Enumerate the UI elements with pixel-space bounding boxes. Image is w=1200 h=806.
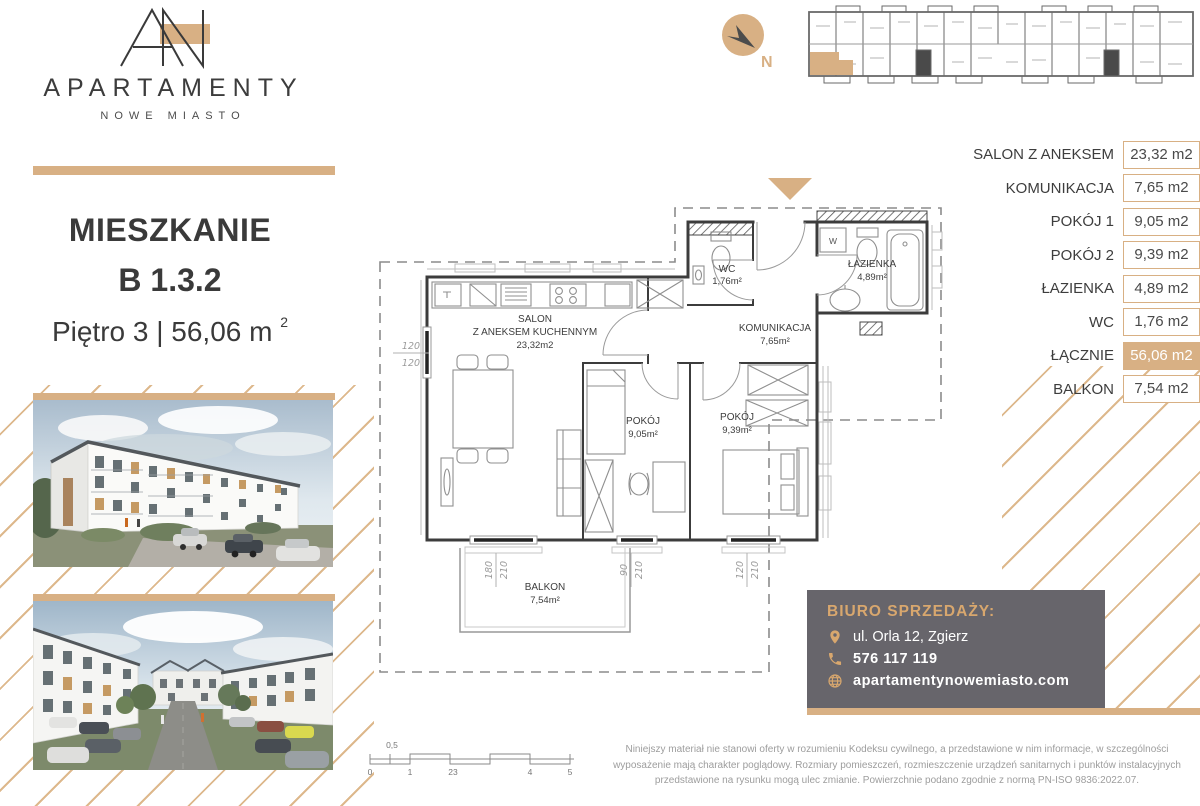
globe-icon xyxy=(827,673,843,689)
address-text: ul. Orla 12, Zgierz xyxy=(853,629,968,645)
scale-4: 4 xyxy=(528,767,533,777)
building-overview-plan xyxy=(806,4,1198,90)
scale-bar: 0,5 0 1 23 4 5 xyxy=(366,736,588,782)
svg-text:210: 210 xyxy=(634,561,645,579)
dimension-labels: 120 120 180 210 90 210 120 210 xyxy=(393,341,761,587)
phone-icon xyxy=(827,651,843,667)
scale-0: 0 xyxy=(368,767,373,777)
bathroom-area: 4,89m² xyxy=(857,272,887,283)
area-superscript: 2 xyxy=(280,314,288,330)
row-value: 9,39 m2 xyxy=(1123,241,1200,269)
table-row: KOMUNIKACJA7,65 m2 xyxy=(945,174,1200,203)
compass-label: N xyxy=(761,54,773,71)
listing-title: MIESZKANIE B 1.3.2 Piętro 3 | 56,06 m 2 xyxy=(0,212,340,348)
scale-1: 1 xyxy=(408,767,413,777)
row-label: ŁAZIENKA xyxy=(945,280,1123,297)
wc-label: WC xyxy=(719,264,736,275)
entrance-arrow-marker xyxy=(768,178,812,200)
building-photo-2 xyxy=(33,601,333,770)
wc-area: 1,76m² xyxy=(712,276,742,287)
scale-23: 23 xyxy=(448,767,458,777)
listing-unit-number: B 1.3.2 xyxy=(0,262,340,299)
website-row: apartamentynowemiasto.com xyxy=(827,673,1105,689)
row-value: 7,65 m2 xyxy=(1123,174,1200,202)
room2-area: 9,39m² xyxy=(722,425,752,436)
table-row: POKÓJ 29,39 m2 xyxy=(945,241,1200,270)
brand-name: APARTAMENTY xyxy=(0,74,340,103)
dim-balcony-door: 180 210 xyxy=(484,553,510,587)
map-pin-icon xyxy=(827,629,843,645)
brand-subtitle: NOWE MIASTO xyxy=(0,110,340,122)
building-photo-1 xyxy=(33,400,333,567)
balcony-label: BALKON xyxy=(525,582,566,593)
contact-bottom-bar xyxy=(807,708,1200,715)
table-row: WC1,76 m2 xyxy=(945,308,1200,337)
address-row: ul. Orla 12, Zgierz xyxy=(827,629,1105,645)
scale-half-label: 0,5 xyxy=(386,740,398,750)
website-text[interactable]: apartamentynowemiasto.com xyxy=(853,673,1069,689)
brochure-page: APARTAMENTY NOWE MIASTO MIESZKANIE B 1.3… xyxy=(0,0,1200,806)
row-value-total: 56,06 m2 xyxy=(1123,342,1200,370)
interior-walls xyxy=(583,222,817,540)
row-value: 1,76 m2 xyxy=(1123,308,1200,336)
svg-text:180: 180 xyxy=(484,561,495,579)
doors xyxy=(603,222,857,400)
highlighted-unit-marker xyxy=(810,52,853,75)
hall-label: KOMUNIKACJA xyxy=(739,323,812,334)
listing-type: MIESZKANIE xyxy=(0,212,340,249)
room1-area: 9,05m² xyxy=(628,429,658,440)
table-row: BALKON7,54 m2 xyxy=(945,375,1200,404)
brand-logo-monogram xyxy=(105,4,235,74)
hall-area: 7,65m² xyxy=(760,336,790,347)
table-row: ŁAZIENKA4,89 m2 xyxy=(945,274,1200,303)
dim-window2: 120 210 xyxy=(735,553,761,587)
room1-label: POKÓJ xyxy=(626,414,660,427)
bathroom-label: ŁAZIENKA xyxy=(848,259,897,270)
svg-text:120: 120 xyxy=(402,341,420,352)
phone-row: 576 117 119 xyxy=(827,651,1105,667)
floor-area-text: Piętro 3 | 56,06 m xyxy=(52,316,273,347)
dim-window1: 90 210 xyxy=(619,553,645,587)
divider-bar xyxy=(33,166,335,175)
legal-disclaimer: Niniejszy materiał nie stanowi oferty w … xyxy=(608,742,1186,789)
svg-text:210: 210 xyxy=(499,561,510,579)
sales-office-title: BIURO SPRZEDAŻY: xyxy=(827,603,1105,621)
table-row: SALON Z ANEKSEM23,32 m2 xyxy=(945,140,1200,169)
row-label: SALON Z ANEKSEM xyxy=(945,146,1123,163)
salon-label2: Z ANEKSEM KUCHENNYM xyxy=(473,327,597,338)
listing-floor-area: Piętro 3 | 56,06 m 2 xyxy=(0,314,340,348)
row-value: 7,54 m2 xyxy=(1123,375,1200,403)
room-areas-table: SALON Z ANEKSEM23,32 m2 KOMUNIKACJA7,65 … xyxy=(945,140,1200,408)
salon-area: 23,32m2 xyxy=(517,340,554,351)
scale-5: 5 xyxy=(568,767,573,777)
row-label: POKÓJ 2 xyxy=(945,247,1123,264)
row-value: 23,32 m2 xyxy=(1123,141,1200,169)
row-label: ŁĄCZNIE xyxy=(945,347,1123,364)
row-value: 9,05 m2 xyxy=(1123,208,1200,236)
row-label: POKÓJ 1 xyxy=(945,213,1123,230)
brand-text: APARTAMENTY NOWE MIASTO xyxy=(0,74,340,122)
row-label: WC xyxy=(945,314,1123,331)
svg-text:120: 120 xyxy=(735,561,746,579)
table-row: POKÓJ 19,05 m2 xyxy=(945,207,1200,236)
phone-text: 576 117 119 xyxy=(853,651,938,667)
svg-text:90: 90 xyxy=(619,564,630,576)
svg-text:120: 120 xyxy=(402,358,420,369)
salon-label: SALON xyxy=(518,314,552,325)
photo2-top-bar xyxy=(33,594,335,601)
windows xyxy=(423,327,785,553)
room2-label: POKÓJ xyxy=(720,410,754,423)
washer-label: W xyxy=(829,236,837,246)
row-label: BALKON xyxy=(945,381,1123,398)
sales-office-box: BIURO SPRZEDAŻY: ul. Orla 12, Zgierz 576… xyxy=(807,590,1105,708)
compass-north-icon: N xyxy=(705,5,795,73)
balcony-area: 7,54m² xyxy=(530,595,560,606)
photo1-top-bar xyxy=(33,393,335,400)
table-row-total: ŁĄCZNIE56,06 m2 xyxy=(945,341,1200,370)
row-label: KOMUNIKACJA xyxy=(945,180,1123,197)
svg-text:210: 210 xyxy=(750,561,761,579)
row-value: 4,89 m2 xyxy=(1123,275,1200,303)
